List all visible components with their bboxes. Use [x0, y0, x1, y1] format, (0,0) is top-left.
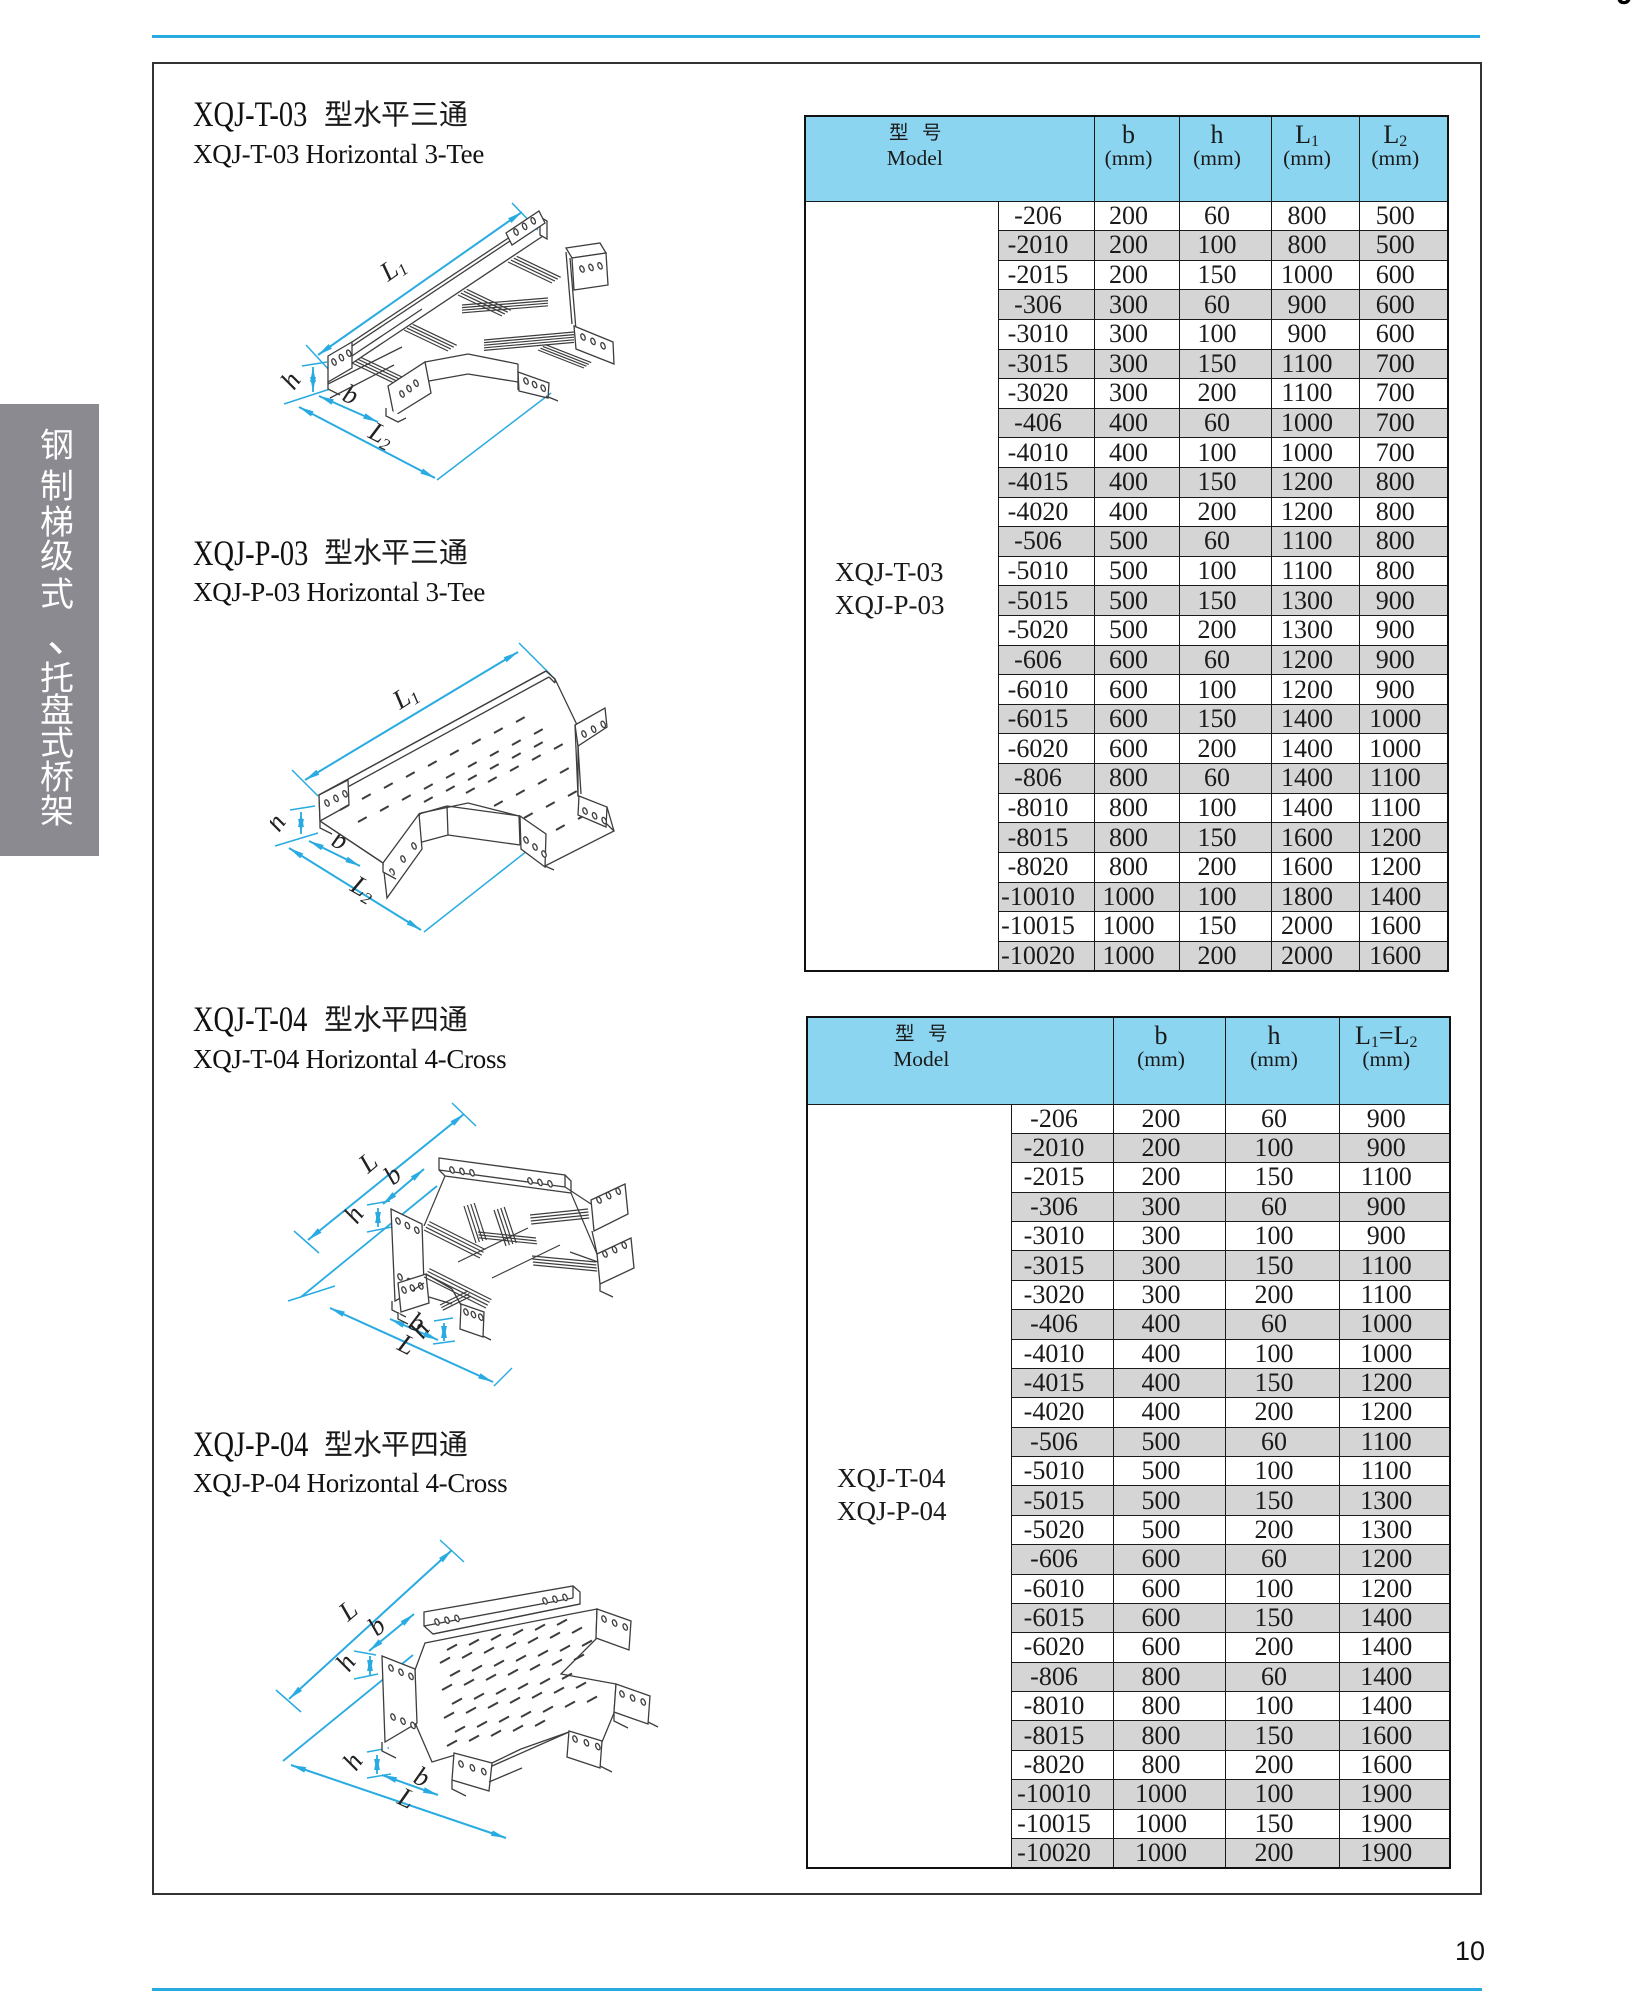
svg-text:L2: L2	[362, 415, 399, 455]
svg-text:b: b	[409, 1760, 434, 1793]
svg-text:L: L	[332, 1594, 364, 1627]
svg-text:h: h	[329, 1648, 361, 1676]
svg-text:L1: L1	[373, 249, 411, 289]
svg-text:h: h	[274, 366, 306, 394]
svg-text:h: h	[270, 808, 292, 836]
svg-text:L: L	[352, 1146, 384, 1179]
svg-text:h: h	[336, 1747, 368, 1775]
